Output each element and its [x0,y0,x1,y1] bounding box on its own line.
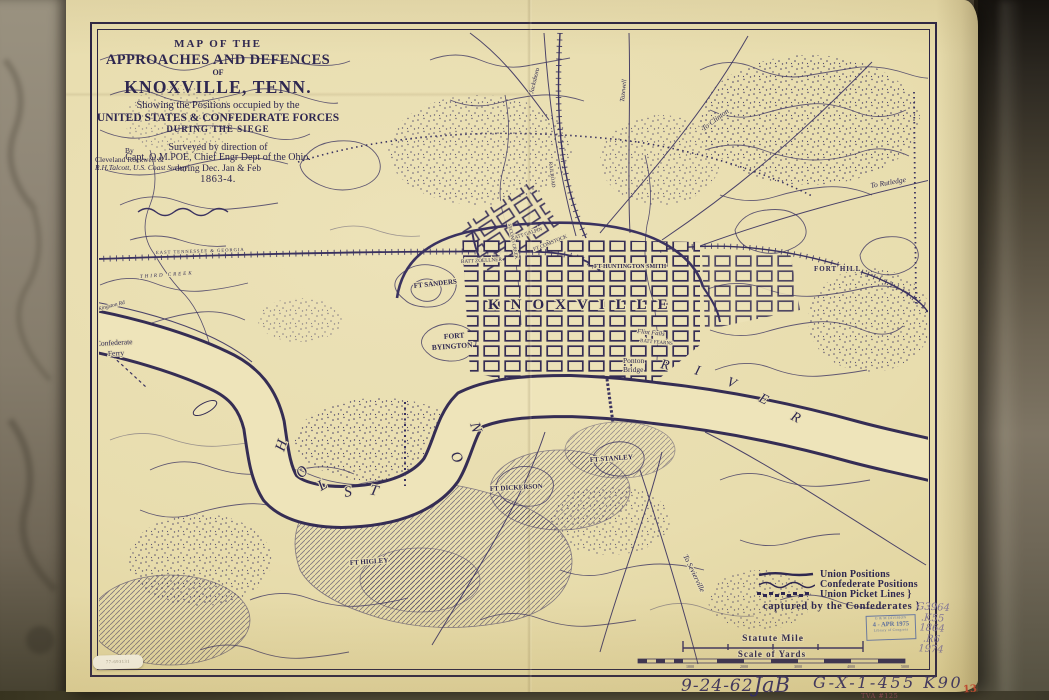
yards-bar: 1000 2000 3000 4000 5000 [638,659,909,669]
handwritten-initials: JaB [754,673,790,697]
title-line: MAP OF THE [95,39,341,51]
label-fort-huntington-smith: FT HUNTINGTON SMITH [594,264,666,270]
label-jacksboro-road: Jacksboro [528,66,541,94]
title-line: OF [95,69,341,77]
handwritten-code: G-X-1-455 K90 [813,673,963,692]
catalog-sticker: 77-693131 [93,654,143,669]
red-page-number: 13 [963,684,978,696]
title-line: Showing the Positions occupied by the [95,100,341,111]
label-ponton-bridge: Ponton [623,356,645,365]
label-confederate-ferry: Ferry [108,348,125,358]
union-picket-lines-sample [757,590,815,599]
label-river-letter: I [692,363,703,379]
handwritten-date-text: 9-24-62 [681,676,754,696]
label-river-letter: V [725,375,740,393]
photo-of-map: KNOXVILLE H O L S T O N R I V E R Ponton… [0,0,1049,700]
label-scale-of-yards: Scale of Yards [738,649,806,659]
label-third-creek: THIRD CREEK [140,271,194,280]
label-fort-byington: FORT [444,331,465,341]
yards-tick: 1000 [686,664,694,669]
label-knoxville: KNOXVILLE [488,297,679,313]
confederate-positions-sample [757,580,815,589]
yards-tick: 4000 [847,664,855,669]
handwritten-tva-number: TVA #125 [861,692,898,700]
label-fort-hill: FORT HILL [814,265,861,273]
title-line: 1863-4. [95,174,341,185]
label-fort-sanders: FT SANDERS [413,278,457,290]
label-ponton-bridge: Bridge [623,365,644,374]
call-number: G3964 .K55 1864 .R6 1974 [907,602,958,657]
label-fort-byington: BYINGTON [432,340,474,352]
label-tazewell-road: Tazewell [619,79,628,102]
yards-tick: 5000 [901,664,909,669]
legend-union-picket-lines: Union Picket Lines } [820,589,912,600]
title-line: APPROACHES AND DEFENCES [95,53,341,68]
yards-tick: 3000 [794,664,802,669]
label-to-sevierville: To Sevierville [681,553,707,594]
yards-tick: 2000 [740,664,748,669]
title-line: UNITED STATES & CONFEDERATE FORCES [95,112,341,124]
surveyor-byline: By Cleveland Rockwell & R.H.Talcott, U.S… [95,147,245,173]
union-positions-sample [757,570,815,579]
handwritten-date: 9-24-62JaB [681,672,790,696]
label-statute-mile: Statute Mile [742,634,804,644]
title-line: DURING THE SIEGE [95,125,341,135]
confederate-positions-line [138,209,228,216]
label-to-rutledge: To Rutledge [870,175,907,190]
byline-name: R.H.Talcott, U.S. Coast Survey [95,164,245,173]
title-line: KNOXVILLE, TENN. [95,78,341,97]
